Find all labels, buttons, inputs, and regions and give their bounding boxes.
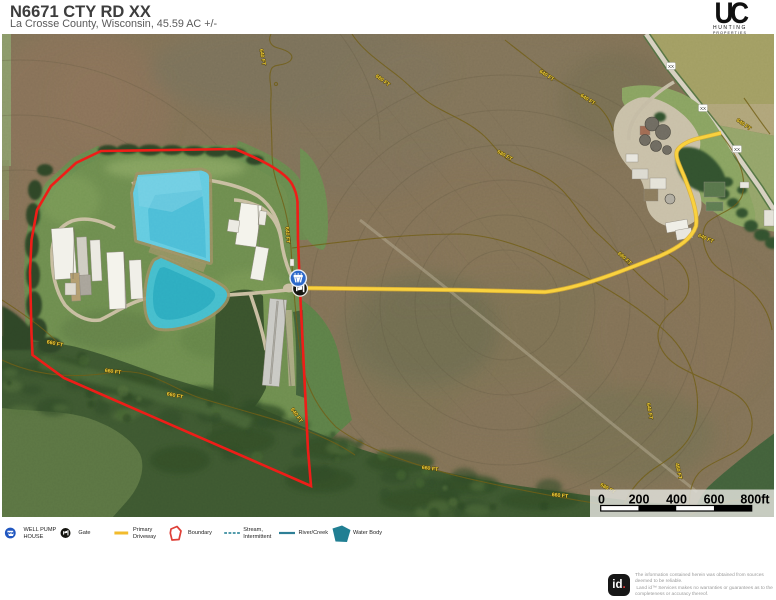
svg-text:0: 0 bbox=[598, 493, 605, 507]
svg-text:600: 600 bbox=[704, 493, 725, 507]
svg-text:400: 400 bbox=[666, 493, 687, 507]
svg-text:800ft: 800ft bbox=[740, 493, 770, 507]
svg-text:200: 200 bbox=[629, 493, 650, 507]
